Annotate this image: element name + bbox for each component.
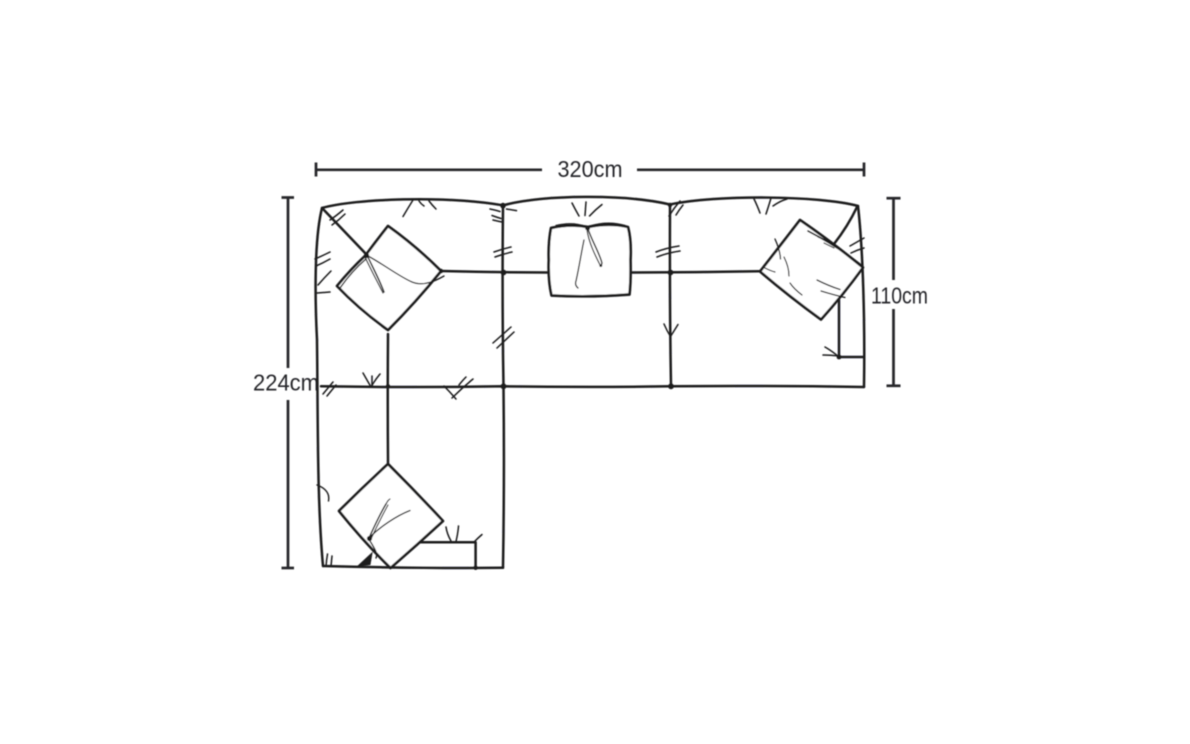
svg-text:224cm: 224cm <box>253 370 319 396</box>
svg-text:110cm: 110cm <box>871 283 928 309</box>
svg-text:320cm: 320cm <box>558 156 623 182</box>
